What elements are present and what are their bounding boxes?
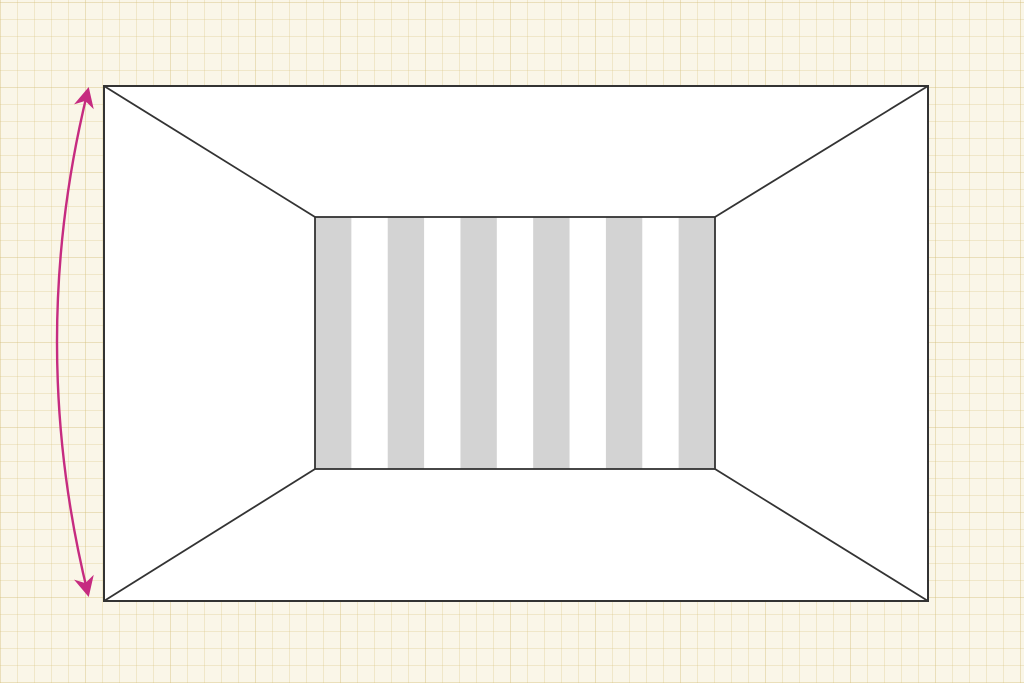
stripe-gray bbox=[679, 217, 716, 469]
stripe-white bbox=[424, 217, 461, 469]
stripe-white bbox=[642, 217, 679, 469]
stripe-gray bbox=[533, 217, 570, 469]
corridor-illusion-figure bbox=[0, 0, 1024, 683]
stripe-pattern bbox=[315, 217, 715, 469]
double-headed-arrow-icon bbox=[57, 90, 88, 594]
stripe-gray bbox=[315, 217, 352, 469]
stripe-gray bbox=[388, 217, 425, 469]
stripe-gray bbox=[460, 217, 497, 469]
stripe-white bbox=[351, 217, 388, 469]
stripe-white bbox=[497, 217, 534, 469]
stripe-white bbox=[570, 217, 607, 469]
stripe-gray bbox=[606, 217, 643, 469]
